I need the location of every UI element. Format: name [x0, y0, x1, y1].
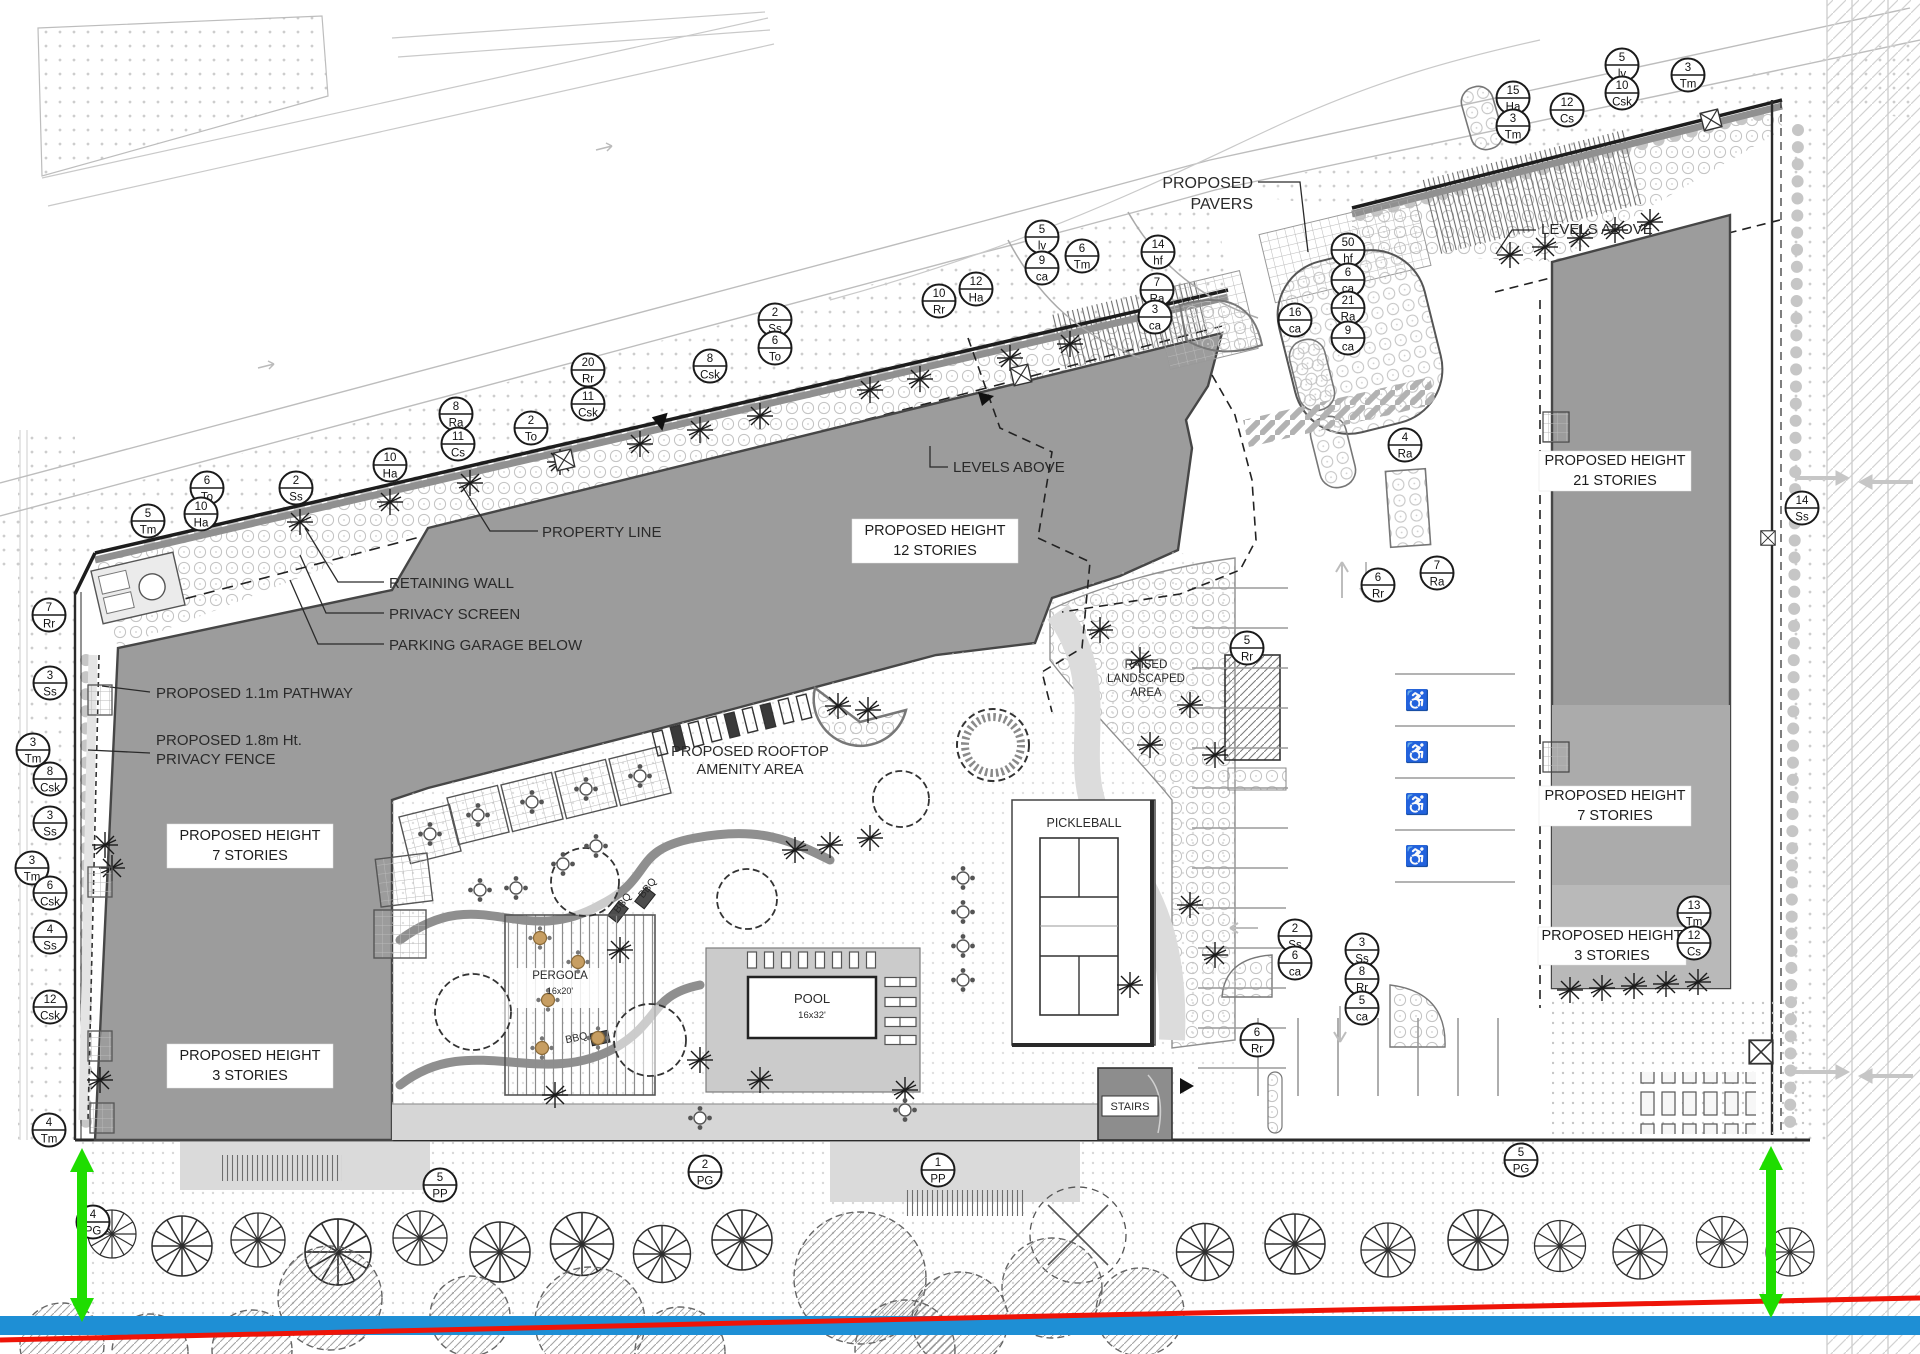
- planter-square: [88, 1031, 112, 1061]
- svg-text:5: 5: [1244, 635, 1250, 647]
- plant-tag: 10 Ha: [185, 498, 218, 531]
- tree-symbol: [1177, 1224, 1234, 1281]
- lounge-chair: [900, 1018, 916, 1027]
- hatched-tree-blob: [1096, 1268, 1184, 1354]
- plant-tag: 11 Csk: [572, 388, 605, 421]
- svg-text:12 STORIES: 12 STORIES: [893, 543, 977, 559]
- plant-tag: 20 Rr: [572, 354, 605, 387]
- canopy-tree-symbol: [435, 974, 511, 1050]
- svg-text:12: 12: [970, 276, 983, 288]
- height-label-box: PROPOSED HEIGHT 12 STORIES: [852, 519, 1018, 563]
- svg-text:8: 8: [453, 401, 459, 413]
- svg-text:ca: ca: [1289, 967, 1302, 979]
- svg-text:ca: ca: [1149, 321, 1162, 333]
- canopy-tree-symbol: [717, 869, 777, 929]
- plan-label: LEVELS ABOVE: [953, 459, 1065, 476]
- svg-text:Tm: Tm: [140, 525, 157, 537]
- lounge-chair: [885, 1018, 901, 1027]
- svg-text:4: 4: [46, 1117, 53, 1129]
- plan-label: PROPOSED ROOFTOP: [671, 744, 829, 760]
- plant-tag: 3 Tm: [1497, 110, 1530, 143]
- svg-text:Tm: Tm: [41, 1134, 58, 1146]
- plant-tag: 8 Csk: [34, 763, 67, 796]
- wheelchair-icon: ♿: [1405, 792, 1430, 816]
- plant-tag: 12 Ha: [960, 273, 993, 306]
- lounge-chair: [885, 978, 901, 987]
- plant-tag: 8 Ra: [440, 398, 473, 431]
- tree-symbol: [231, 1213, 285, 1267]
- svg-text:10: 10: [1616, 80, 1629, 92]
- plant-tag: 4 Ra: [1389, 429, 1422, 462]
- svg-text:12: 12: [1688, 930, 1701, 942]
- canopy-tree-symbol: [614, 1004, 686, 1076]
- x-box-mark: [1761, 531, 1775, 545]
- plant-tag: 3 Tm: [17, 734, 50, 767]
- svg-text:To: To: [525, 432, 537, 444]
- plan-label: 16x20': [547, 986, 574, 996]
- plant-tag: 9 ca: [1332, 322, 1365, 355]
- plant-tag: 12 Cs: [1678, 927, 1711, 960]
- svg-text:♿: ♿: [1405, 688, 1430, 712]
- svg-text:2: 2: [772, 307, 778, 319]
- plant-tag: 6 To: [759, 332, 792, 365]
- plant-tag: 16 ca: [1279, 304, 1312, 337]
- svg-text:3: 3: [1685, 62, 1691, 74]
- tree-symbol: [1361, 1223, 1415, 1277]
- svg-text:PG: PG: [85, 1226, 102, 1238]
- plant-tag: 3 Ss: [34, 807, 67, 840]
- svg-text:Tm: Tm: [1505, 130, 1522, 142]
- terrace-square: [374, 910, 426, 958]
- svg-text:To: To: [769, 352, 781, 364]
- lounge-chair: [900, 998, 916, 1007]
- svg-text:PROPOSED HEIGHT: PROPOSED HEIGHT: [180, 828, 321, 844]
- site-plan-page: ♿ ♿ ♿ ♿ PROPOSED HEIGHT 12 STORIES PROPO…: [0, 0, 1920, 1354]
- svg-text:PP: PP: [930, 1174, 946, 1186]
- wheelchair-icon: ♿: [1405, 844, 1430, 868]
- plant-tag: 7 Ra: [1421, 557, 1454, 590]
- svg-text:2: 2: [293, 475, 299, 487]
- svg-text:8: 8: [1359, 966, 1365, 978]
- plant-tag: 5 PP: [424, 1169, 457, 1202]
- svg-text:Csk: Csk: [40, 897, 60, 909]
- height-label-box: PROPOSED HEIGHT 7 STORIES: [1539, 786, 1691, 826]
- svg-text:Ss: Ss: [43, 941, 57, 953]
- wheelchair-icon: ♿: [1405, 740, 1430, 764]
- wheelchair-icon: ♿: [1405, 688, 1430, 712]
- svg-text:5: 5: [437, 1172, 443, 1184]
- svg-text:ca: ca: [1356, 1012, 1369, 1024]
- svg-text:Ss: Ss: [43, 687, 57, 699]
- right-building: [1540, 215, 1810, 1135]
- svg-text:Ss: Ss: [289, 492, 303, 504]
- height-label-box: PROPOSED HEIGHT 21 STORIES: [1539, 451, 1691, 491]
- plant-tag: 6 Rr: [1362, 569, 1395, 602]
- svg-text:7 STORIES: 7 STORIES: [212, 848, 287, 864]
- svg-text:10: 10: [933, 288, 946, 300]
- plant-tag: 50 hf: [1332, 234, 1365, 267]
- plan-label: POOL: [794, 991, 830, 1006]
- tree-symbol: [152, 1216, 212, 1276]
- plan-label: PERGOLA: [532, 970, 588, 982]
- svg-text:PROPOSED HEIGHT: PROPOSED HEIGHT: [180, 1048, 321, 1064]
- tree-symbol: [1265, 1214, 1325, 1274]
- plant-tag: 10 Rr: [923, 285, 956, 318]
- plant-tag: 21 Ra: [1332, 292, 1365, 325]
- plan-label: RETAINING WALL: [389, 575, 514, 592]
- svg-text:Csk: Csk: [1612, 97, 1632, 109]
- planter-square: [90, 1103, 114, 1133]
- x-box-mark: [1700, 109, 1722, 131]
- x-box-mark: [1010, 364, 1032, 386]
- svg-text:3 STORIES: 3 STORIES: [1574, 948, 1649, 964]
- svg-text:Tm: Tm: [1680, 79, 1697, 91]
- svg-text:5: 5: [145, 508, 151, 520]
- plant-tag: 5 Tm: [132, 505, 165, 538]
- svg-text:PROPOSED HEIGHT: PROPOSED HEIGHT: [1542, 928, 1683, 944]
- svg-text:5: 5: [1039, 224, 1045, 236]
- lounge-chair: [765, 952, 774, 968]
- pool: [748, 977, 876, 1038]
- svg-text:PG: PG: [1513, 1164, 1530, 1176]
- svg-text:6: 6: [204, 475, 210, 487]
- lounge-chair: [816, 952, 825, 968]
- plan-label: AMENITY AREA: [697, 762, 804, 778]
- svg-text:3: 3: [1152, 304, 1158, 316]
- hatched-tree-blob: [430, 1276, 510, 1354]
- svg-text:12: 12: [44, 994, 57, 1006]
- svg-text:Rr: Rr: [43, 619, 55, 631]
- svg-text:5: 5: [1518, 1147, 1524, 1159]
- lounge-chair: [833, 952, 842, 968]
- canopy-tree-symbol: [873, 771, 929, 827]
- svg-text:Csk: Csk: [578, 408, 598, 420]
- plan-label: AREA: [1130, 687, 1162, 699]
- svg-text:9: 9: [1039, 255, 1045, 267]
- plant-tag: 6 Rr: [1241, 1024, 1274, 1057]
- svg-text:3: 3: [1359, 937, 1365, 949]
- plan-label: PRIVACY FENCE: [156, 751, 275, 768]
- svg-text:9: 9: [1345, 325, 1351, 337]
- svg-text:7: 7: [1154, 277, 1160, 289]
- height-label-box: PROPOSED HEIGHT 7 STORIES: [167, 824, 333, 868]
- svg-text:6: 6: [1345, 267, 1351, 279]
- plant-tag: 8 Csk: [694, 350, 727, 383]
- height-label-box: PROPOSED HEIGHT 3 STORIES: [1538, 927, 1686, 965]
- plant-tag: 6 Csk: [34, 877, 67, 910]
- svg-text:Rr: Rr: [1251, 1044, 1263, 1056]
- svg-text:ca: ca: [1289, 324, 1302, 336]
- lounge-chair: [885, 1036, 901, 1045]
- plan-label: LANDSCAPED: [1107, 673, 1185, 685]
- plan-label: 16x32': [798, 1010, 826, 1021]
- svg-text:6: 6: [772, 335, 778, 347]
- svg-text:13: 13: [1688, 900, 1701, 912]
- svg-text:♿: ♿: [1405, 844, 1430, 868]
- plant-tag: 12 Cs: [1551, 94, 1584, 127]
- lounge-chair: [782, 952, 791, 968]
- svg-text:Csk: Csk: [40, 1011, 60, 1023]
- svg-text:Tm: Tm: [1074, 260, 1091, 272]
- plan-label: STAIRS: [1111, 1101, 1150, 1113]
- plant-tag: 5 PG: [1505, 1144, 1538, 1177]
- svg-text:11: 11: [452, 431, 464, 443]
- plan-label: LEVELS ABOVE: [1541, 221, 1653, 238]
- plant-tag: 10 Csk: [1606, 77, 1639, 110]
- plant-tag: 13 Tm: [1678, 897, 1711, 930]
- plant-tag: 1 PP: [922, 1154, 955, 1187]
- svg-text:Rr: Rr: [1372, 589, 1384, 601]
- lounge-chair: [799, 952, 808, 968]
- plant-tag: 4 Ss: [34, 921, 67, 954]
- plant-tag: 14 Ss: [1786, 492, 1819, 525]
- svg-text:Csk: Csk: [700, 370, 720, 382]
- plan-label: RAISED: [1125, 659, 1168, 671]
- svg-text:Ha: Ha: [383, 469, 398, 481]
- plant-tag: 3 ca: [1139, 301, 1172, 334]
- svg-text:Rr: Rr: [1241, 652, 1253, 664]
- plant-tag: 9 ca: [1026, 252, 1059, 285]
- svg-text:15: 15: [1507, 85, 1520, 97]
- plant-tag: 11 Cs: [442, 428, 475, 461]
- tree-symbol: [1448, 1210, 1508, 1270]
- svg-text:6: 6: [1079, 243, 1085, 255]
- svg-text:Tm: Tm: [25, 754, 42, 766]
- terrace-square: [375, 853, 432, 907]
- tree-symbol: [634, 1226, 691, 1283]
- svg-text:6: 6: [1254, 1027, 1260, 1039]
- svg-text:3: 3: [29, 855, 35, 867]
- lounge-chair: [748, 952, 757, 968]
- plan-label: PROPERTY LINE: [542, 524, 662, 541]
- svg-text:10: 10: [384, 452, 397, 464]
- plan-label: PARKING GARAGE BELOW: [389, 637, 583, 654]
- svg-text:PP: PP: [432, 1189, 448, 1201]
- svg-text:Cs: Cs: [1560, 114, 1574, 126]
- x-box-mark: [553, 449, 575, 471]
- svg-text:6: 6: [1375, 572, 1381, 584]
- svg-text:6: 6: [47, 880, 53, 892]
- svg-text:6: 6: [1292, 950, 1298, 962]
- svg-text:♿: ♿: [1405, 792, 1430, 816]
- svg-text:14: 14: [1152, 239, 1165, 251]
- svg-text:PROPOSED HEIGHT: PROPOSED HEIGHT: [1545, 788, 1686, 804]
- plan-label: PAVERS: [1190, 196, 1253, 213]
- svg-text:PROPOSED HEIGHT: PROPOSED HEIGHT: [1545, 453, 1686, 469]
- bike-racks: [1636, 1072, 1756, 1134]
- height-label-box: PROPOSED HEIGHT 3 STORIES: [167, 1044, 333, 1088]
- svg-text:7: 7: [1434, 560, 1440, 572]
- svg-text:21 STORIES: 21 STORIES: [1573, 473, 1657, 489]
- plant-tag: 6 Tm: [1066, 240, 1099, 273]
- svg-text:3: 3: [47, 670, 53, 682]
- plant-tag: 6 ca: [1279, 947, 1312, 980]
- svg-text:1: 1: [935, 1157, 941, 1169]
- tree-symbol: [551, 1213, 614, 1276]
- plant-tag: 2 Ss: [280, 472, 313, 505]
- svg-text:Ss: Ss: [1795, 512, 1809, 524]
- svg-text:Ss: Ss: [43, 827, 57, 839]
- svg-text:3: 3: [30, 737, 36, 749]
- svg-text:7 STORIES: 7 STORIES: [1577, 808, 1652, 824]
- plant-tag: 3 Ss: [34, 667, 67, 700]
- plant-tag: 2 PG: [689, 1156, 722, 1189]
- svg-text:14: 14: [1796, 495, 1809, 507]
- plant-tag: 4 Tm: [33, 1114, 66, 1147]
- svg-text:3 STORIES: 3 STORIES: [212, 1068, 287, 1084]
- svg-text:2: 2: [702, 1159, 708, 1171]
- tree-symbol: [1613, 1225, 1667, 1279]
- plant-tag: 5 lv: [1026, 221, 1059, 254]
- svg-text:7: 7: [46, 602, 52, 614]
- lounge-chair: [900, 1036, 916, 1045]
- plan-label: PRIVACY SCREEN: [389, 606, 520, 623]
- tree-symbol: [470, 1222, 530, 1282]
- svg-text:Ra: Ra: [1398, 449, 1413, 461]
- svg-text:16: 16: [1289, 307, 1302, 319]
- circular-planter: [957, 709, 1029, 781]
- svg-text:5: 5: [1619, 52, 1625, 64]
- svg-text:Cs: Cs: [1687, 947, 1701, 959]
- site-plan-drawing: ♿ ♿ ♿ ♿ PROPOSED HEIGHT 12 STORIES PROPO…: [0, 0, 1920, 1354]
- svg-text:Rr: Rr: [933, 305, 945, 317]
- plant-tag: 10 Ha: [374, 449, 407, 482]
- lounge-chair: [900, 978, 916, 987]
- plant-tag: 7 Rr: [33, 599, 66, 632]
- pickleball-court: [1012, 800, 1155, 1045]
- plant-tag: 12 Csk: [34, 991, 67, 1024]
- svg-text:10: 10: [195, 501, 208, 513]
- svg-text:ca: ca: [1036, 272, 1049, 284]
- tree-symbol: [1535, 1221, 1586, 1272]
- svg-text:8: 8: [47, 766, 53, 778]
- svg-text:♿: ♿: [1405, 740, 1430, 764]
- lounge-chair: [867, 952, 876, 968]
- tree-symbol: [393, 1211, 447, 1265]
- svg-text:3: 3: [47, 810, 53, 822]
- svg-text:4: 4: [47, 924, 54, 936]
- svg-text:Ra: Ra: [1430, 577, 1445, 589]
- plan-label: PROPOSED: [1162, 175, 1253, 192]
- svg-text:20: 20: [582, 357, 595, 369]
- x-box-mark: [1749, 1040, 1772, 1063]
- plan-label: PICKLEBALL: [1046, 816, 1121, 830]
- plant-tag: 14 hf: [1142, 236, 1175, 269]
- plan-label: PROPOSED 1.1m PATHWAY: [156, 685, 353, 702]
- plant-tag: 3 Tm: [1672, 59, 1705, 92]
- svg-text:4: 4: [90, 1209, 97, 1221]
- svg-text:3: 3: [1510, 113, 1516, 125]
- svg-text:hf: hf: [1153, 256, 1163, 268]
- svg-text:2: 2: [528, 415, 534, 427]
- svg-text:12: 12: [1561, 97, 1574, 109]
- svg-text:5: 5: [1359, 995, 1365, 1007]
- svg-text:Rr: Rr: [582, 374, 594, 386]
- svg-text:Csk: Csk: [40, 783, 60, 795]
- svg-text:2: 2: [1292, 923, 1298, 935]
- tree-symbol: [712, 1210, 772, 1270]
- svg-text:8: 8: [707, 353, 713, 365]
- plant-tag: 5 Rr: [1231, 632, 1264, 665]
- svg-text:Ha: Ha: [194, 518, 209, 530]
- svg-text:Ha: Ha: [969, 293, 984, 305]
- tree-symbol: [1697, 1217, 1748, 1268]
- svg-text:11: 11: [582, 391, 594, 403]
- svg-text:Cs: Cs: [451, 448, 465, 460]
- planter-square: [88, 867, 112, 897]
- svg-text:4: 4: [1402, 432, 1409, 444]
- svg-text:50: 50: [1342, 237, 1355, 249]
- lounge-chair: [885, 998, 901, 1007]
- plant-tag: 5 ca: [1346, 992, 1379, 1025]
- svg-text:PG: PG: [697, 1176, 714, 1188]
- svg-text:21: 21: [1342, 295, 1355, 307]
- svg-text:PROPOSED HEIGHT: PROPOSED HEIGHT: [865, 523, 1006, 539]
- lounge-chair: [850, 952, 859, 968]
- planter-square: [88, 685, 112, 715]
- plan-label: PROPOSED 1.8m Ht.: [156, 732, 302, 749]
- svg-text:ca: ca: [1342, 342, 1355, 354]
- plant-tag: 2 To: [515, 412, 548, 445]
